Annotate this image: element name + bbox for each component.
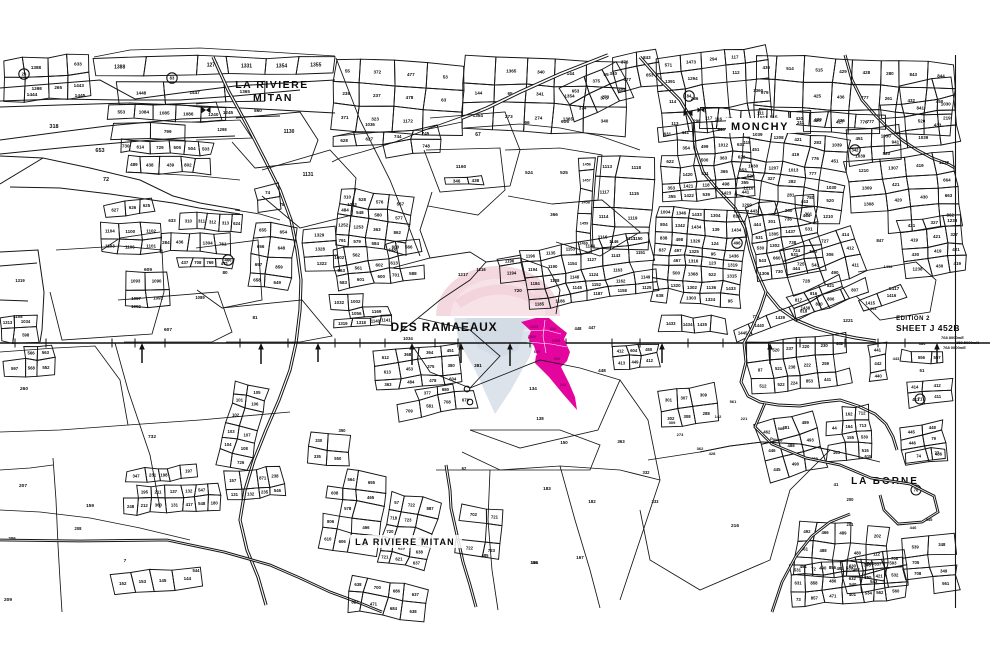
svg-text:769: 769	[206, 260, 214, 265]
svg-text:62: 62	[462, 466, 467, 471]
svg-text:1346: 1346	[676, 210, 687, 215]
svg-text:419: 419	[954, 261, 962, 266]
svg-text:1308: 1308	[864, 201, 875, 206]
svg-text:1503: 1503	[530, 325, 538, 329]
svg-text:1013: 1013	[788, 168, 799, 173]
svg-text:1324: 1324	[705, 297, 716, 302]
svg-text:777: 777	[809, 171, 817, 176]
svg-text:802: 802	[184, 162, 192, 167]
svg-text:660: 660	[773, 256, 781, 261]
svg-text:301: 301	[768, 219, 776, 224]
svg-text:1196: 1196	[505, 258, 515, 263]
svg-text:560: 560	[892, 588, 900, 593]
svg-text:471: 471	[829, 594, 837, 599]
svg-text:723: 723	[488, 548, 496, 553]
svg-text:137: 137	[170, 489, 178, 494]
svg-text:414: 414	[842, 232, 850, 237]
svg-text:429: 429	[839, 69, 847, 74]
svg-text:500: 500	[672, 270, 680, 275]
svg-text:1391: 1391	[665, 79, 676, 84]
svg-text:1313: 1313	[3, 320, 13, 325]
svg-text:730: 730	[775, 269, 783, 274]
svg-text:332: 332	[643, 470, 651, 475]
svg-text:448: 448	[929, 425, 937, 430]
svg-text:73: 73	[796, 597, 801, 602]
svg-text:1208: 1208	[774, 135, 785, 140]
svg-text:726: 726	[237, 460, 245, 465]
svg-text:1089: 1089	[195, 295, 205, 300]
svg-text:114: 114	[669, 99, 677, 104]
svg-text:330: 330	[315, 438, 323, 443]
svg-text:490: 490	[792, 462, 800, 467]
svg-text:736: 736	[784, 216, 792, 221]
svg-text:1056: 1056	[351, 311, 362, 316]
svg-text:467: 467	[673, 258, 681, 263]
svg-text:862: 862	[393, 230, 401, 235]
svg-text:1118: 1118	[631, 165, 641, 170]
svg-text:1100: 1100	[125, 229, 135, 234]
svg-text:159: 159	[86, 503, 94, 509]
svg-text:123: 123	[709, 260, 717, 265]
svg-text:858: 858	[810, 580, 818, 585]
svg-text:1030: 1030	[941, 101, 952, 106]
svg-text:374: 374	[579, 106, 587, 111]
svg-text:164: 164	[846, 424, 854, 429]
svg-text:436: 436	[837, 118, 845, 123]
svg-text:1434: 1434	[731, 227, 742, 232]
svg-text:1030: 1030	[881, 134, 892, 139]
svg-text:419: 419	[792, 152, 800, 157]
svg-text:211: 211	[797, 120, 805, 125]
svg-text:1143: 1143	[611, 253, 621, 258]
svg-text:72: 72	[103, 177, 109, 183]
svg-text:655: 655	[259, 228, 267, 233]
svg-text:887: 887	[427, 506, 435, 511]
svg-text:451: 451	[831, 159, 839, 164]
svg-text:1302: 1302	[770, 243, 781, 248]
svg-text:1154: 1154	[568, 261, 578, 266]
svg-text:219: 219	[943, 116, 951, 121]
svg-text:327: 327	[950, 232, 958, 237]
svg-text:347: 347	[133, 473, 141, 478]
svg-text:1092: 1092	[131, 304, 141, 309]
svg-text:1210: 1210	[823, 214, 834, 219]
svg-text:679: 679	[761, 90, 769, 95]
svg-text:273: 273	[677, 432, 684, 437]
svg-text:1238: 1238	[947, 218, 958, 223]
svg-text:117: 117	[705, 116, 713, 121]
svg-text:282: 282	[788, 179, 796, 184]
svg-text:274: 274	[535, 115, 543, 120]
svg-text:1420: 1420	[683, 172, 694, 177]
svg-text:941: 941	[892, 140, 900, 145]
svg-text:1185: 1185	[535, 301, 545, 306]
svg-text:197: 197	[185, 469, 193, 474]
svg-text:725: 725	[797, 262, 805, 267]
svg-text:853: 853	[806, 379, 814, 384]
svg-text:664: 664	[943, 178, 951, 183]
svg-text:1207: 1207	[769, 165, 780, 170]
svg-text:1415: 1415	[865, 300, 875, 305]
svg-text:51: 51	[920, 368, 925, 373]
svg-text:821: 821	[827, 283, 835, 288]
svg-text:477: 477	[407, 72, 415, 77]
svg-text:1135: 1135	[546, 250, 556, 255]
svg-text:198: 198	[160, 473, 168, 478]
svg-text:1152: 1152	[592, 282, 602, 287]
svg-text:118: 118	[702, 182, 710, 187]
svg-text:LA RIVIERE MITAN: LA RIVIERE MITAN	[355, 537, 455, 547]
svg-text:1443: 1443	[74, 83, 85, 88]
svg-text:157: 157	[229, 478, 237, 483]
svg-text:417: 417	[186, 502, 194, 507]
svg-text:626: 626	[129, 205, 137, 210]
svg-text:597: 597	[11, 366, 19, 371]
svg-text:606: 606	[561, 119, 569, 125]
svg-text:553: 553	[117, 109, 125, 114]
svg-text:362: 362	[697, 446, 704, 451]
svg-text:216: 216	[731, 523, 739, 529]
svg-text:438: 438	[472, 178, 480, 183]
svg-text:261: 261	[885, 96, 893, 101]
svg-text:466: 466	[225, 258, 233, 263]
svg-text:441: 441	[824, 377, 832, 382]
svg-text:443: 443	[801, 199, 809, 204]
svg-text:81: 81	[252, 315, 258, 320]
svg-text:364: 364	[426, 350, 434, 355]
svg-text:514: 514	[786, 66, 794, 71]
svg-text:540: 540	[849, 582, 857, 587]
svg-text:83: 83	[170, 76, 175, 81]
svg-text:101: 101	[236, 398, 244, 403]
svg-text:1153: 1153	[566, 247, 576, 252]
svg-text:701: 701	[392, 273, 400, 278]
svg-text:208: 208	[75, 526, 83, 531]
svg-text:259: 259	[822, 361, 830, 366]
svg-text:425: 425	[814, 93, 822, 98]
svg-text:1036: 1036	[365, 122, 375, 127]
svg-text:1329: 1329	[314, 233, 325, 238]
svg-text:376: 376	[621, 59, 629, 64]
svg-text:489: 489	[130, 162, 138, 167]
svg-text:445: 445	[773, 467, 781, 472]
svg-text:138: 138	[536, 416, 544, 421]
svg-text:1602: 1602	[334, 255, 345, 260]
svg-text:654: 654	[280, 229, 288, 234]
svg-text:624: 624	[233, 221, 241, 226]
svg-text:807: 807	[851, 287, 859, 292]
svg-text:520: 520	[918, 119, 926, 124]
svg-text:1445: 1445	[75, 93, 86, 99]
svg-text:1146: 1146	[609, 239, 619, 244]
svg-text:1210: 1210	[859, 168, 870, 173]
svg-text:108: 108	[241, 446, 249, 451]
svg-text:1184: 1184	[530, 281, 540, 286]
svg-text:1412: 1412	[884, 264, 894, 269]
svg-text:412: 412	[934, 383, 942, 388]
svg-text:1309: 1309	[862, 186, 873, 191]
svg-text:211: 211	[155, 489, 163, 494]
svg-text:1238: 1238	[939, 160, 950, 165]
svg-text:95: 95	[728, 299, 734, 304]
svg-text:117: 117	[731, 54, 739, 59]
svg-text:365: 365	[720, 169, 728, 174]
svg-text:748: 748	[422, 144, 430, 149]
svg-text:309: 309	[669, 420, 676, 425]
svg-text:471: 471	[370, 602, 378, 607]
svg-text:281: 281	[787, 193, 795, 198]
svg-text:709: 709	[406, 409, 414, 414]
svg-text:79: 79	[931, 436, 936, 441]
svg-text:55: 55	[345, 68, 351, 73]
svg-text:1115: 1115	[629, 191, 639, 196]
svg-text:481: 481	[782, 425, 790, 430]
svg-text:847: 847	[876, 238, 884, 243]
svg-text:443: 443	[750, 208, 758, 213]
svg-text:580: 580	[374, 212, 382, 217]
svg-text:485: 485	[482, 553, 490, 558]
svg-text:1328: 1328	[315, 247, 326, 252]
svg-text:730: 730	[122, 143, 130, 148]
svg-text:301: 301	[665, 398, 673, 403]
svg-text:451: 451	[447, 348, 455, 353]
svg-text:346: 346	[453, 178, 461, 183]
svg-text:1473: 1473	[686, 60, 697, 65]
svg-text:1434: 1434	[683, 322, 693, 327]
svg-text:323: 323	[371, 117, 379, 122]
svg-text:817: 817	[795, 298, 803, 303]
svg-text:420: 420	[894, 198, 902, 203]
svg-text:441: 441	[681, 130, 689, 135]
svg-text:41: 41	[834, 482, 839, 487]
svg-text:520: 520	[883, 151, 891, 156]
svg-text:583: 583	[339, 280, 347, 285]
svg-text:439: 439	[167, 162, 175, 167]
svg-text:537: 537	[874, 562, 882, 567]
svg-text:451: 451	[856, 136, 864, 141]
svg-text:340: 340	[601, 118, 609, 123]
svg-text:375: 375	[593, 79, 601, 84]
svg-text:524: 524	[525, 170, 533, 175]
svg-text:363: 363	[617, 439, 625, 444]
svg-text:1144: 1144	[586, 243, 596, 248]
svg-text:1433: 1433	[726, 286, 737, 291]
svg-text:444: 444	[754, 222, 762, 227]
svg-text:1034: 1034	[21, 319, 31, 324]
svg-text:563: 563	[42, 350, 50, 355]
svg-text:327: 327	[931, 220, 939, 225]
svg-text:231: 231	[149, 472, 157, 477]
svg-text:80: 80	[222, 270, 228, 275]
svg-text:1039: 1039	[918, 135, 929, 140]
svg-text:512: 512	[759, 384, 767, 389]
svg-text:SHEET J 452B: SHEET J 452B	[896, 323, 960, 333]
svg-text:562: 562	[876, 590, 884, 595]
svg-text:838: 838	[660, 236, 668, 241]
svg-text:1196: 1196	[526, 254, 536, 259]
svg-text:777: 777	[867, 119, 875, 124]
svg-text:525: 525	[560, 170, 568, 175]
svg-text:1194: 1194	[528, 267, 538, 272]
svg-text:1188: 1188	[550, 278, 560, 283]
svg-text:162: 162	[845, 411, 853, 416]
svg-text:1448: 1448	[136, 91, 147, 96]
svg-text:1388: 1388	[114, 64, 125, 70]
svg-text:224: 224	[791, 380, 799, 385]
svg-text:823: 823	[351, 599, 359, 604]
svg-text:1294: 1294	[688, 76, 699, 81]
svg-text:1458: 1458	[581, 200, 589, 204]
svg-text:DES RAMAEAUX: DES RAMAEAUX	[391, 320, 498, 334]
svg-text:1187: 1187	[593, 291, 603, 296]
svg-text:522: 522	[778, 382, 786, 387]
svg-text:327: 327	[767, 176, 775, 181]
svg-text:638: 638	[354, 582, 362, 587]
svg-text:209: 209	[4, 597, 12, 603]
svg-text:363: 363	[720, 156, 728, 161]
svg-text:1145: 1145	[573, 285, 583, 290]
svg-text:498: 498	[676, 237, 684, 242]
svg-text:105: 105	[253, 390, 261, 395]
svg-text:167: 167	[576, 555, 584, 560]
svg-text:1447: 1447	[189, 90, 200, 95]
svg-text:806: 806	[827, 296, 835, 301]
svg-text:414: 414	[911, 385, 919, 390]
svg-text:539: 539	[702, 192, 710, 197]
svg-text:490: 490	[831, 270, 839, 275]
svg-text:63: 63	[441, 98, 447, 103]
svg-text:633: 633	[168, 218, 176, 223]
svg-text:1034: 1034	[403, 336, 413, 341]
svg-text:440: 440	[875, 374, 883, 379]
svg-text:377: 377	[424, 391, 432, 396]
svg-text:705: 705	[912, 560, 920, 565]
svg-text:1210: 1210	[743, 186, 754, 191]
svg-text:1325: 1325	[689, 249, 700, 254]
svg-text:308: 308	[684, 414, 692, 419]
svg-text:318: 318	[49, 124, 58, 130]
svg-text:722: 722	[408, 502, 416, 507]
svg-text:776: 776	[811, 156, 819, 161]
svg-text:499: 499	[701, 144, 709, 149]
svg-text:857: 857	[811, 595, 819, 600]
svg-text:613: 613	[384, 370, 392, 375]
svg-text:412: 412	[846, 246, 854, 251]
svg-text:718: 718	[390, 516, 398, 521]
svg-text:124: 124	[711, 241, 719, 246]
svg-text:531: 531	[805, 227, 813, 232]
svg-text:638: 638	[656, 293, 664, 298]
svg-text:579: 579	[353, 239, 361, 244]
svg-text:720: 720	[514, 288, 522, 293]
svg-text:201: 201	[847, 522, 855, 527]
svg-text:791: 791	[338, 238, 346, 243]
svg-text:1440: 1440	[755, 323, 765, 328]
svg-text:602: 602	[554, 357, 560, 361]
svg-text:230: 230	[821, 343, 829, 348]
svg-text:107: 107	[244, 432, 252, 437]
svg-text:371: 371	[341, 115, 349, 120]
svg-text:1162: 1162	[616, 278, 626, 283]
svg-text:312: 312	[209, 220, 217, 225]
svg-text:1368: 1368	[688, 271, 699, 276]
svg-text:819: 819	[733, 214, 741, 219]
svg-text:614: 614	[136, 144, 144, 149]
svg-text:648: 648	[278, 246, 286, 251]
svg-text:333: 333	[652, 499, 660, 504]
svg-text:MITAN: MITAN	[253, 92, 293, 104]
svg-text:340: 340	[537, 70, 545, 75]
svg-text:248: 248	[127, 504, 135, 509]
svg-text:557: 557	[934, 355, 942, 360]
svg-text:411: 411	[934, 394, 942, 399]
svg-text:384: 384	[919, 341, 926, 346]
svg-text:564: 564	[348, 477, 356, 482]
svg-text:1320: 1320	[671, 283, 682, 288]
svg-text:132: 132	[247, 491, 255, 496]
svg-text:631: 631	[795, 581, 803, 586]
svg-text:412: 412	[617, 349, 625, 354]
svg-text:1439: 1439	[775, 315, 785, 320]
svg-text:804: 804	[660, 222, 668, 227]
svg-text:1125: 1125	[642, 285, 652, 290]
svg-text:355: 355	[668, 194, 676, 199]
svg-text:462: 462	[763, 430, 771, 435]
svg-text:437: 437	[181, 260, 189, 265]
svg-text:443: 443	[893, 356, 900, 361]
svg-text:152: 152	[119, 581, 127, 586]
svg-text:539: 539	[912, 544, 920, 549]
svg-text:363: 363	[384, 382, 392, 387]
svg-text:1253: 1253	[353, 224, 364, 229]
svg-text:1423: 1423	[721, 191, 732, 196]
svg-text:1509: 1509	[528, 335, 536, 339]
svg-text:237: 237	[786, 346, 794, 351]
svg-text:134: 134	[529, 386, 537, 391]
svg-text:684: 684	[390, 606, 398, 611]
svg-text:131: 131	[171, 503, 179, 508]
svg-text:1422: 1422	[684, 193, 695, 198]
svg-text:446: 446	[910, 525, 917, 530]
svg-text:1331: 1331	[241, 63, 252, 69]
svg-text:220: 220	[802, 344, 810, 349]
svg-text:166: 166	[532, 560, 539, 565]
svg-text:1252: 1252	[338, 222, 349, 227]
svg-text:102: 102	[232, 413, 240, 418]
svg-text:563: 563	[338, 268, 346, 273]
svg-text:543: 543	[759, 258, 767, 263]
svg-text:360: 360	[155, 503, 163, 508]
svg-text:221: 221	[741, 416, 748, 421]
svg-text:106: 106	[251, 402, 259, 407]
svg-text:604: 604	[630, 348, 638, 353]
svg-text:445: 445	[908, 430, 916, 435]
svg-text:637: 637	[413, 561, 421, 566]
svg-text:1086: 1086	[183, 112, 194, 117]
svg-text:1298: 1298	[217, 127, 227, 132]
svg-text:1104: 1104	[105, 229, 115, 234]
svg-text:515: 515	[862, 448, 870, 453]
svg-text:1004: 1004	[660, 210, 671, 215]
svg-text:550: 550	[334, 456, 342, 461]
svg-text:561: 561	[355, 266, 363, 271]
svg-text:492: 492	[803, 529, 811, 534]
svg-text:581: 581	[426, 404, 434, 409]
svg-text:421: 421	[892, 182, 900, 187]
svg-text:142: 142	[715, 414, 722, 419]
svg-text:1160: 1160	[456, 164, 467, 170]
svg-text:1302: 1302	[687, 285, 698, 290]
